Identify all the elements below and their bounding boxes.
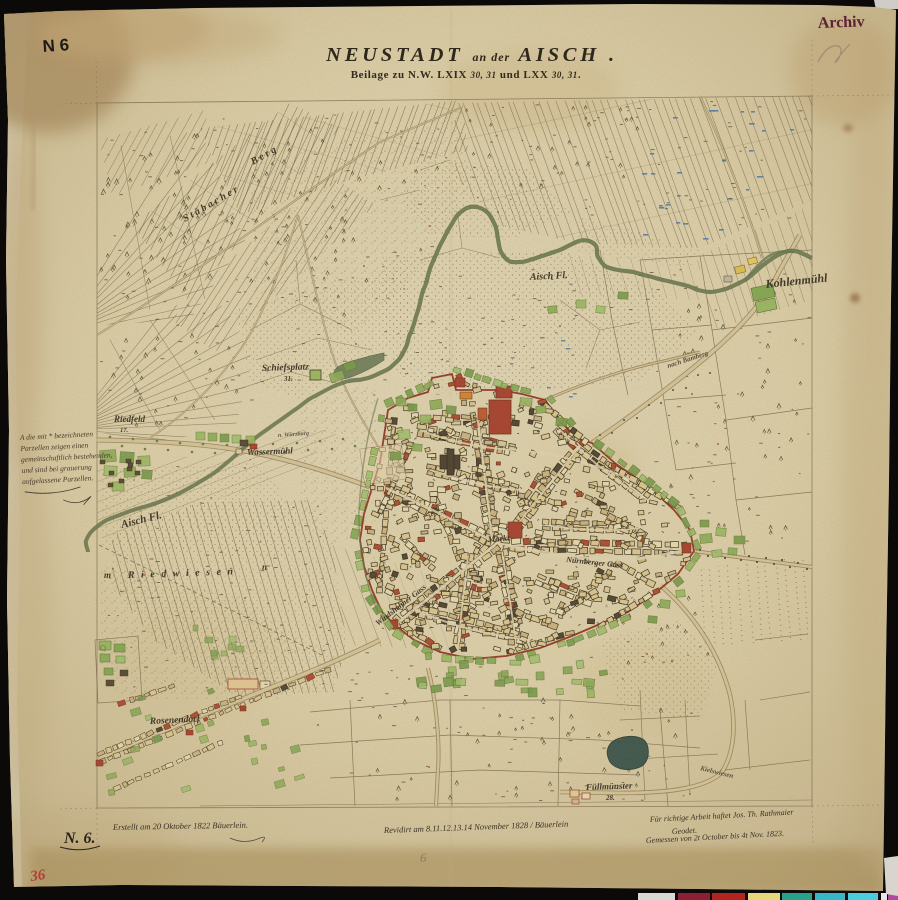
svg-text:6: 6 — [420, 850, 427, 865]
svg-text:Archiv: Archiv — [818, 13, 865, 32]
svg-text:36: 36 — [28, 867, 47, 885]
svg-text:Beilage zu N.W. LXIX 30, 31 un: Beilage zu N.W. LXIX 30, 31 und LXX 30, … — [351, 69, 582, 81]
svg-text:N. 6.: N. 6. — [63, 830, 96, 847]
svg-text:NEUSTADT an der AISCH .: NEUSTADT an der AISCH . — [325, 44, 618, 66]
svg-text:N 6: N 6 — [42, 35, 70, 56]
